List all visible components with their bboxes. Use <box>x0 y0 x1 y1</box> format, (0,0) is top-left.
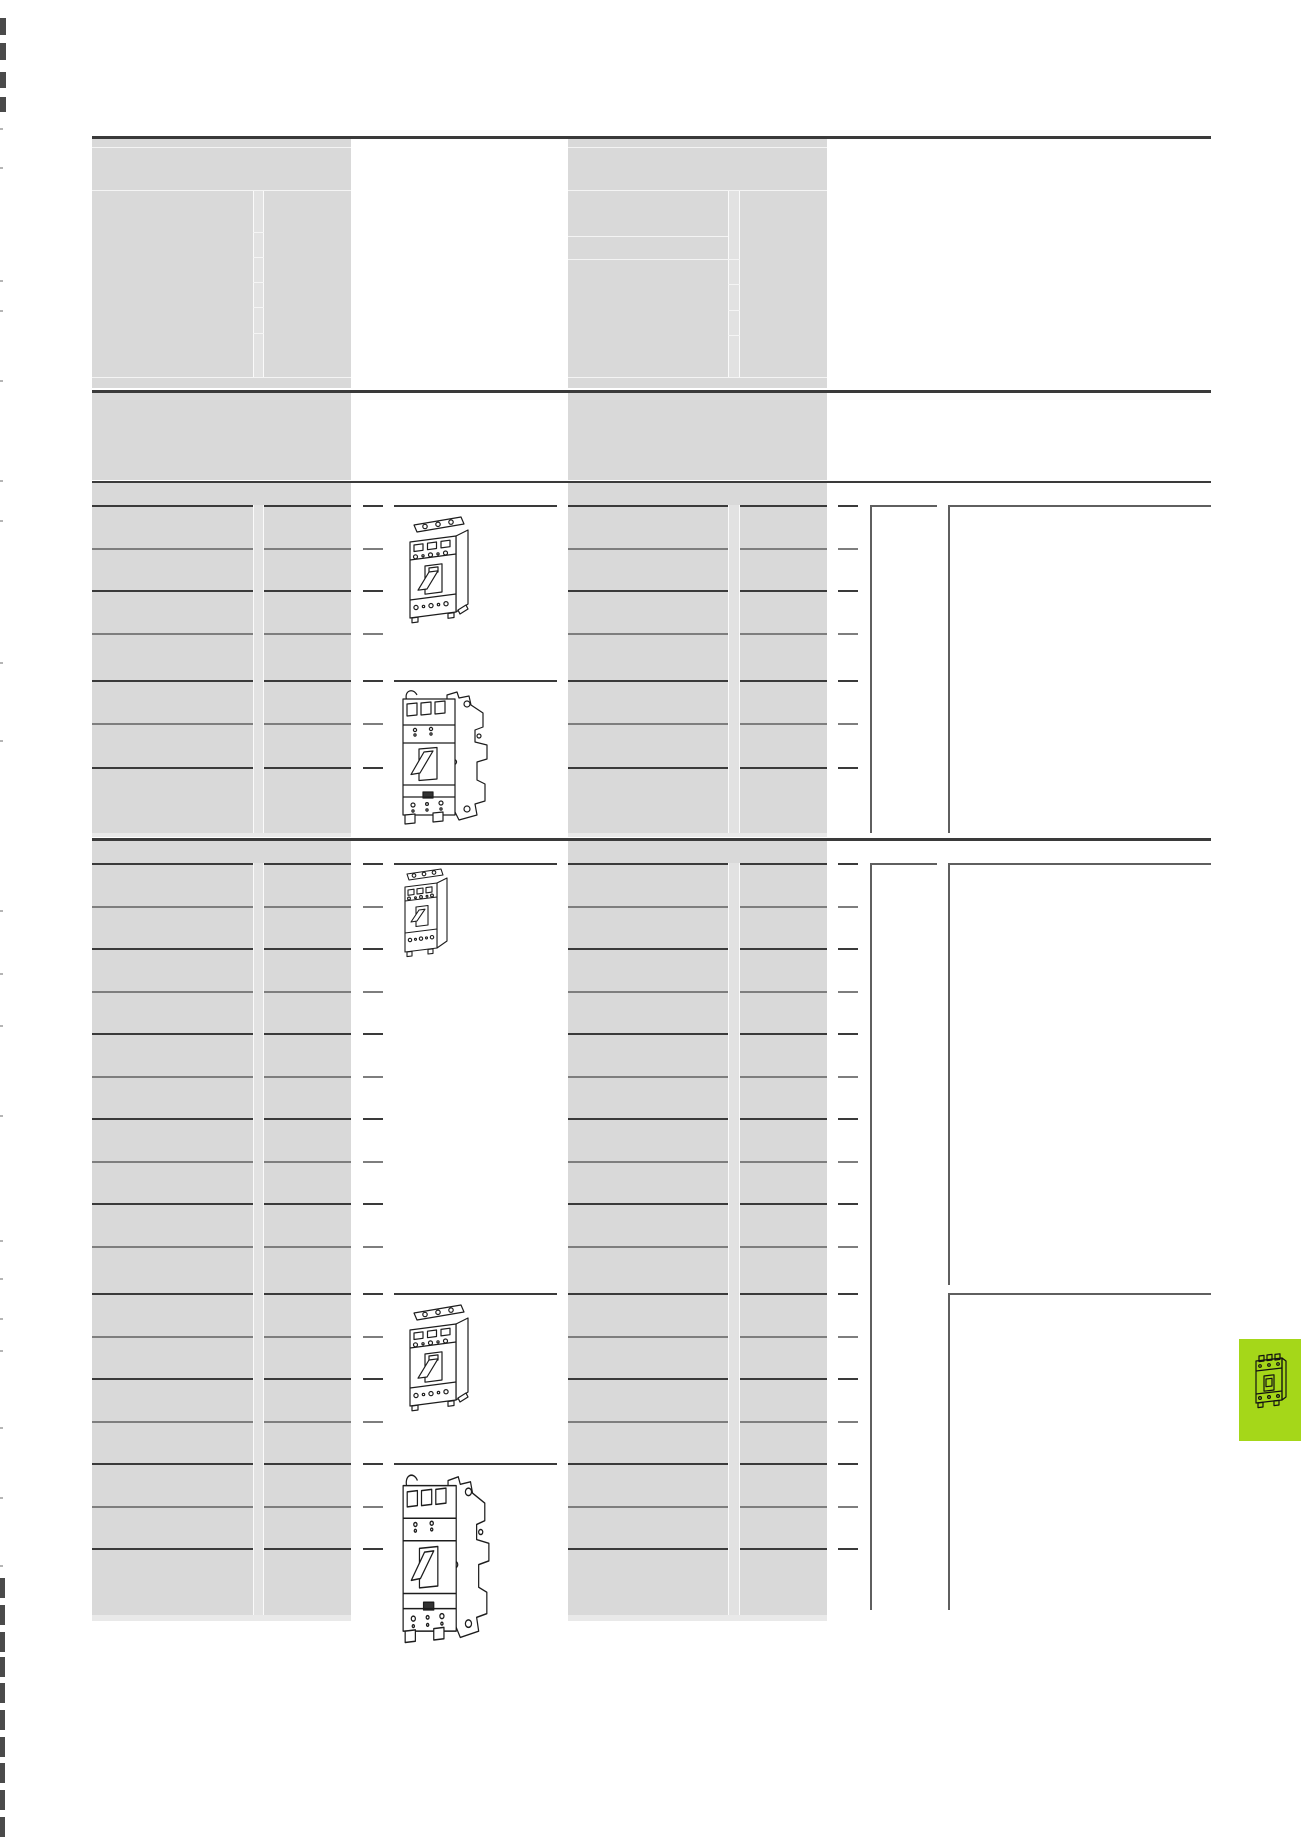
print-mark-tick <box>0 1115 3 1117</box>
print-mark-tick <box>0 1350 3 1352</box>
section-2-row-line <box>568 1421 728 1423</box>
section-2-row-line <box>264 1246 351 1248</box>
section-2-row-line <box>568 1293 728 1295</box>
section-2-row-line <box>740 1161 827 1163</box>
section-1-row-line <box>740 633 827 635</box>
section-2-row-line <box>363 1118 383 1120</box>
section1-gutter-right <box>728 505 740 833</box>
spec-header-redacted-left <box>92 139 351 388</box>
section-2-row-line <box>92 1161 253 1163</box>
spec-header-gutter-cell-line <box>253 232 264 233</box>
section-2-row-line <box>838 1421 858 1423</box>
section-2-row-line <box>838 1161 858 1163</box>
catalog-page <box>0 0 1301 1839</box>
section2-grey-fade-left <box>92 1615 351 1621</box>
print-mark-tick <box>0 128 3 130</box>
section-1-row-line <box>568 548 728 550</box>
section-1-row-line <box>568 505 728 507</box>
section-2-row-line <box>363 863 383 865</box>
spec-header-hairline <box>568 147 827 148</box>
section-2-row-line <box>363 1203 383 1205</box>
section-2-row-line <box>363 1336 383 1338</box>
top-rule <box>92 136 1211 139</box>
section-2-row-line <box>264 991 351 993</box>
section-1-row-line <box>92 505 253 507</box>
section-2-ref-col-vertical <box>870 863 872 1610</box>
section-2-row-line <box>92 1293 253 1295</box>
section-2-row-line <box>568 1548 728 1550</box>
section-2-row-line <box>92 1463 253 1465</box>
section1-bottom-rule <box>92 838 1211 841</box>
section-2-row-line <box>568 1118 728 1120</box>
section-1-row-line <box>92 723 253 725</box>
print-mark-bar <box>0 1737 5 1757</box>
section-2-row-line <box>740 1246 827 1248</box>
section-2-row-line <box>264 863 351 865</box>
section-2-row-line <box>264 948 351 950</box>
section-2-row-line <box>92 1548 253 1550</box>
print-mark-tick <box>0 1497 3 1499</box>
section-1-row-line <box>264 590 351 592</box>
section-2-row-line <box>363 1548 383 1550</box>
section-2-row-line <box>264 906 351 908</box>
section-2-row-line <box>92 1421 253 1423</box>
section-2-row-line <box>740 1463 827 1465</box>
print-mark-tick <box>0 1025 3 1027</box>
section-2-row-line <box>568 1336 728 1338</box>
section-1-row-line <box>838 680 858 682</box>
section1-title-redacted-left <box>92 483 351 505</box>
print-mark-bar <box>0 72 6 88</box>
section2-grey-fade-right <box>568 1615 827 1621</box>
spec-header-gutter-cell-line <box>253 333 264 334</box>
section-2-row-line <box>568 1203 728 1205</box>
section-1-row-line <box>92 633 253 635</box>
section-2-row-line <box>838 1463 858 1465</box>
section-2-row-line <box>740 1033 827 1035</box>
equipment-note-redacted-right <box>568 393 827 480</box>
section-1-row-line <box>363 680 383 682</box>
section-2-row-line <box>264 1548 351 1550</box>
section-1-row-line <box>568 680 728 682</box>
section-2-row-line <box>568 1463 728 1465</box>
spec-header-hairline <box>92 190 351 191</box>
print-mark-tick <box>0 662 3 664</box>
spec-header-redacted-right <box>568 139 827 388</box>
section-2-row-line <box>394 1293 557 1295</box>
section-2-order-col-top-line <box>948 1293 1211 1295</box>
section-1-row-line <box>92 548 253 550</box>
section-2-row-line <box>740 863 827 865</box>
section-2-order-col-vertical <box>948 863 950 1285</box>
section-2-row-line <box>740 1421 827 1423</box>
section-2-row-line <box>264 1076 351 1078</box>
section-2-row-line <box>740 1506 827 1508</box>
section-1-row-line <box>568 767 728 769</box>
section-2-row-line <box>363 1463 383 1465</box>
section2-gutter-right <box>728 863 740 1615</box>
equipment-note-redacted-left <box>92 393 351 480</box>
section-1-row-line <box>394 680 557 682</box>
spec-header-hairline <box>92 147 351 148</box>
section-2-row-line <box>838 1033 858 1035</box>
print-mark-tick <box>0 910 3 912</box>
section-2-row-line <box>838 1336 858 1338</box>
print-mark-bar <box>0 1683 5 1703</box>
section-2-row-line <box>568 1033 728 1035</box>
section-tab-green <box>1239 1339 1301 1441</box>
section-2-row-line <box>568 1161 728 1163</box>
section-2-row-line <box>838 1378 858 1380</box>
section-2-row-line <box>92 1076 253 1078</box>
section-2-row-line <box>568 1076 728 1078</box>
spec-header-bottom-rule <box>92 390 1211 393</box>
section-2-row-line <box>740 1118 827 1120</box>
section-1-row-line <box>740 548 827 550</box>
section1-grey-fade-right <box>568 833 827 837</box>
section-2-order-col-vertical <box>948 1293 950 1610</box>
section-2-row-line <box>568 1378 728 1380</box>
section-2-row-line <box>92 1506 253 1508</box>
section-2-row-line <box>264 1463 351 1465</box>
print-mark-tick <box>0 1427 3 1429</box>
section-1-row-line <box>838 548 858 550</box>
spec-header-gutter-cell-line <box>728 310 740 311</box>
section1-rows-redacted-right <box>568 505 827 833</box>
print-mark-bar <box>0 1605 5 1625</box>
section-1-row-line <box>92 680 253 682</box>
section-1-row-line <box>394 505 557 507</box>
spec-header-gutter-cell-line <box>728 284 740 285</box>
section-2-row-line <box>740 991 827 993</box>
section2-gutter-left <box>253 863 264 1615</box>
spec-header-hairline <box>92 377 351 378</box>
section-2-row-line <box>363 1506 383 1508</box>
spec-header-hairline <box>568 377 827 378</box>
section-2-row-line <box>264 1421 351 1423</box>
section-1-row-line <box>264 548 351 550</box>
print-mark-bar <box>0 1763 5 1783</box>
section2-title-redacted-left <box>92 841 351 863</box>
section2-rows-redacted-left <box>92 863 351 1615</box>
print-mark-tick <box>0 1318 3 1320</box>
print-mark-tick <box>0 167 3 169</box>
section-2-row-line <box>92 1033 253 1035</box>
print-mark-bar <box>0 1710 5 1730</box>
print-mark-tick <box>0 280 3 282</box>
section-2-row-line <box>264 1203 351 1205</box>
section-2-row-line <box>363 1421 383 1423</box>
spec-header-gutter-left <box>253 190 264 377</box>
section-1-row-line <box>363 767 383 769</box>
section-2-row-line <box>838 906 858 908</box>
section-1-row-line <box>264 767 351 769</box>
section1-grey-fade-left <box>92 833 351 837</box>
section-2-row-line <box>92 1378 253 1380</box>
print-mark-bar <box>0 1790 5 1810</box>
section-2-row-line <box>838 1076 858 1078</box>
print-mark-tick <box>0 1565 3 1567</box>
section-2-row-line <box>740 1203 827 1205</box>
section-2-row-line <box>92 906 253 908</box>
section-2-row-line <box>264 1506 351 1508</box>
section-1-row-line <box>264 680 351 682</box>
section-2-row-line <box>92 948 253 950</box>
section-2-row-line <box>264 1336 351 1338</box>
section1-gutter-left <box>253 505 264 833</box>
section-2-row-line <box>363 1076 383 1078</box>
section-2-row-line <box>838 1203 858 1205</box>
spec-header-gutter-cell-line <box>728 335 740 336</box>
section-1-row-line <box>363 548 383 550</box>
print-mark-tick <box>0 380 3 382</box>
section-2-row-line <box>838 1246 858 1248</box>
section-1-row-line <box>264 633 351 635</box>
section-2-row-line <box>264 1033 351 1035</box>
section-1-row-line <box>838 505 858 507</box>
section-2-row-line <box>363 991 383 993</box>
section-1-row-line <box>838 633 858 635</box>
section-1-row-line <box>568 633 728 635</box>
section-1-row-line <box>740 505 827 507</box>
section-2-row-line <box>363 948 383 950</box>
section-1-row-line <box>264 505 351 507</box>
section-2-row-line <box>92 863 253 865</box>
print-mark-tick <box>0 310 3 312</box>
spec-header-gutter-cell-line <box>253 257 264 258</box>
section-2-row-line <box>740 1293 827 1295</box>
print-mark-bar <box>0 97 6 112</box>
section-1-row-line <box>740 723 827 725</box>
print-mark-bar <box>0 43 6 60</box>
section-2-order-col-top-line <box>948 863 1211 865</box>
section-2-row-line <box>838 1506 858 1508</box>
section-2-row-line <box>740 1548 827 1550</box>
section-2-row-line <box>92 1246 253 1248</box>
section-2-row-line <box>568 863 728 865</box>
section2-rows-redacted-right <box>568 863 827 1615</box>
section-2-row-line <box>363 1378 383 1380</box>
section1-title-redacted-right <box>568 483 827 505</box>
section-1-row-line <box>92 590 253 592</box>
section-1-row-line <box>838 723 858 725</box>
section-1-row-line <box>264 723 351 725</box>
print-mark-bar <box>0 1632 5 1652</box>
circuit-breaker-plug-in-base-drawing-2 <box>397 1468 495 1650</box>
section1-rows-redacted-left <box>92 505 351 833</box>
section-2-row-line <box>838 863 858 865</box>
section-2-row-line <box>838 1293 858 1295</box>
section-1-row-line <box>568 590 728 592</box>
section-2-row-line <box>740 1336 827 1338</box>
spec-header-hairline <box>568 236 728 237</box>
section-2-row-line <box>838 991 858 993</box>
section-2-row-line <box>568 1246 728 1248</box>
print-mark-bar <box>0 1657 5 1677</box>
section-2-row-line <box>264 1293 351 1295</box>
section2-title-redacted-right <box>568 841 827 863</box>
section-2-row-line <box>838 1118 858 1120</box>
section-2-row-line <box>394 1463 557 1465</box>
section-1-ref-col-top-line <box>870 505 937 507</box>
section-2-row-line <box>92 991 253 993</box>
section-2-row-line <box>568 991 728 993</box>
equipment-note-bottom-rule <box>92 481 1211 483</box>
section-2-row-line <box>363 1033 383 1035</box>
section-2-row-line <box>92 1203 253 1205</box>
breaker-tab-icon <box>1252 1352 1288 1414</box>
print-mark-bar <box>0 1578 5 1598</box>
section-1-row-line <box>838 590 858 592</box>
print-mark-bar <box>0 1817 5 1837</box>
circuit-breaker-fixed-mounting-drawing-1 <box>402 510 474 626</box>
section-2-row-line <box>363 1161 383 1163</box>
section-1-ref-col-vertical <box>870 505 872 833</box>
section-2-row-line <box>838 948 858 950</box>
section-2-row-line <box>838 1548 858 1550</box>
section-2-row-line <box>740 906 827 908</box>
print-mark-tick <box>0 480 3 482</box>
section-1-order-col-vertical <box>948 505 950 833</box>
section-2-row-line <box>363 1293 383 1295</box>
section-1-row-line <box>740 767 827 769</box>
section-2-row-line <box>568 1506 728 1508</box>
section-2-row-line <box>740 948 827 950</box>
section-1-row-line <box>363 633 383 635</box>
print-mark-tick <box>0 1240 3 1242</box>
section-1-row-line <box>363 505 383 507</box>
spec-header-hairline <box>568 259 740 260</box>
spec-header-hairline <box>568 190 827 191</box>
circuit-breaker-plug-in-base-drawing-1 <box>397 685 493 830</box>
section-2-row-line <box>568 948 728 950</box>
spec-header-gutter-cell-line <box>253 307 264 308</box>
section-2-row-line <box>568 906 728 908</box>
print-mark-bar <box>0 18 6 35</box>
section-2-row-line <box>92 1336 253 1338</box>
spec-header-gutter-cell-line <box>253 282 264 283</box>
section-1-row-line <box>838 767 858 769</box>
print-mark-tick <box>0 740 3 742</box>
section-1-row-line <box>568 723 728 725</box>
section-2-row-line <box>363 906 383 908</box>
print-mark-tick <box>0 973 3 975</box>
section-2-row-line <box>264 1161 351 1163</box>
section-1-row-line <box>740 590 827 592</box>
section-2-row-line <box>264 1378 351 1380</box>
section-2-row-line <box>363 1246 383 1248</box>
section-2-row-line <box>92 1118 253 1120</box>
section-1-order-col-top-line <box>948 505 1211 507</box>
section-1-row-line <box>740 680 827 682</box>
section-1-row-line <box>92 767 253 769</box>
section-1-row-line <box>363 723 383 725</box>
section-2-row-line <box>740 1378 827 1380</box>
section-2-ref-col-top-line <box>870 863 937 865</box>
circuit-breaker-fixed-mounting-drawing-2 <box>402 1298 474 1414</box>
print-mark-tick <box>0 1278 3 1280</box>
section-2-row-line <box>264 1118 351 1120</box>
circuit-breaker-compact-drawing <box>400 865 452 963</box>
section-2-row-line <box>740 1076 827 1078</box>
print-mark-tick <box>0 520 3 522</box>
section-1-row-line <box>363 590 383 592</box>
